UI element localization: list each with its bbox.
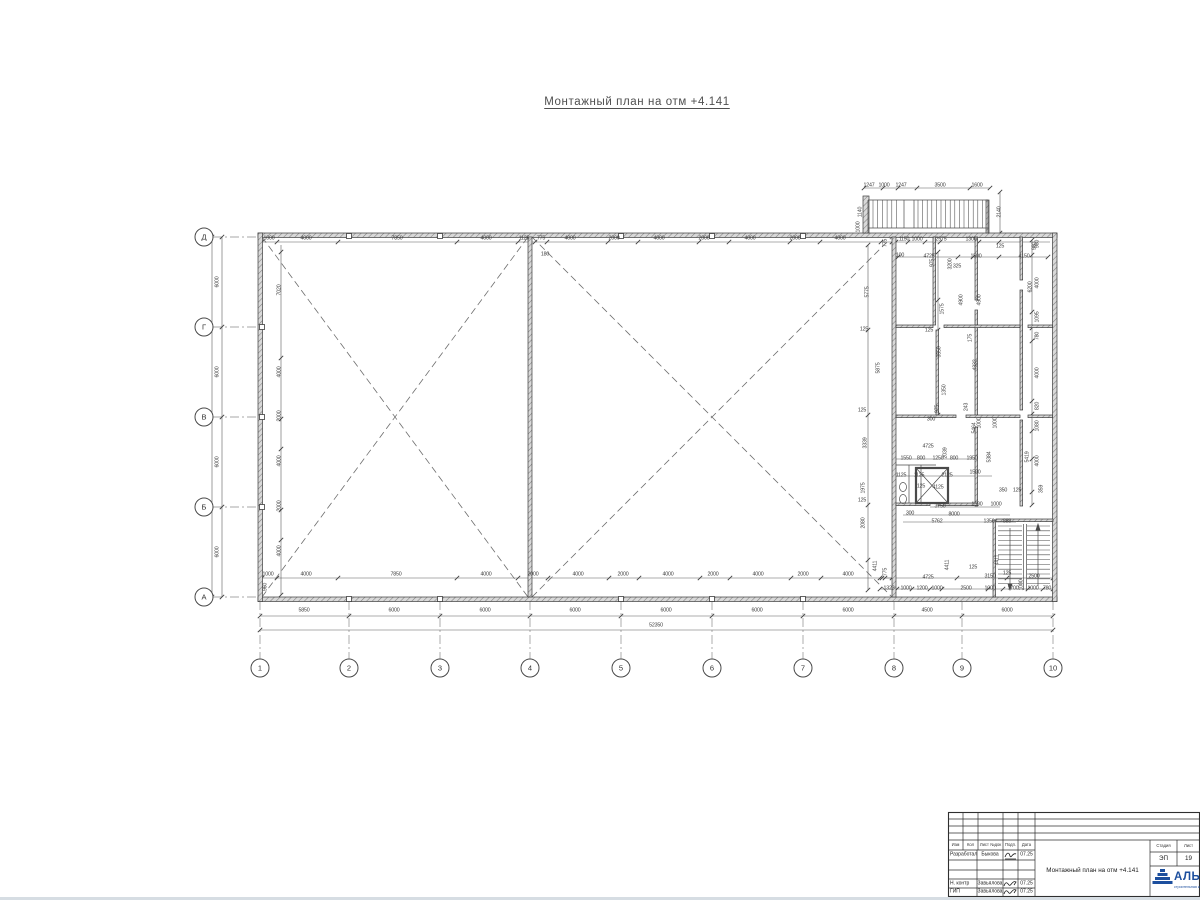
dim-label: 7850	[392, 236, 403, 241]
dim-label: 1250	[933, 456, 944, 461]
titleblock-name: Быкова	[981, 853, 998, 858]
dim-label: 4000	[753, 572, 764, 577]
dim-label: 125	[1003, 571, 1011, 576]
titleblock-date: 07.25	[1020, 881, 1033, 886]
dim-label: 5419	[1025, 452, 1030, 463]
dim-label: 4000	[481, 236, 492, 241]
dim-label: 1300	[966, 237, 977, 242]
dim-label: 1600	[972, 183, 983, 188]
wall-bottom	[258, 597, 1057, 602]
toilet-fixture	[900, 495, 907, 504]
dim-label: 5762	[932, 519, 943, 524]
titleblock-header-izm: Изм	[952, 843, 960, 847]
dim-label: 2000	[277, 501, 282, 512]
stage-label: Стадия	[1156, 844, 1170, 848]
dim-label: 4000	[301, 236, 312, 241]
axis-bubble-8: 8	[885, 659, 904, 678]
dim-label: 5850	[299, 608, 310, 613]
dim-label: 125	[860, 327, 868, 332]
toilet-fixture	[900, 483, 907, 492]
dim-label: 4125	[933, 485, 944, 490]
dim-label: 5775	[865, 287, 870, 298]
axis-bubble-9: 9	[953, 659, 972, 678]
dim-label: 4900	[977, 295, 982, 306]
titleblock-header-data: Дата	[1022, 843, 1031, 847]
dim-label: 1500	[970, 470, 981, 475]
dim-label: 4411	[873, 561, 878, 572]
dim-label: 4000	[277, 367, 282, 378]
signature-mark	[1004, 882, 1016, 886]
dim-label: 4000	[277, 546, 282, 557]
company-logo-icon	[1153, 869, 1173, 884]
dim-label: 2500	[961, 586, 972, 591]
dim-label: 359	[1039, 485, 1044, 493]
dim-label: 1000	[901, 586, 912, 591]
dim-label: 5464	[972, 423, 977, 434]
dim-label: 125	[996, 244, 1004, 249]
dim-label: 1000	[1028, 586, 1039, 591]
titleblock-date: 07.25	[1020, 890, 1033, 895]
dim-label: 3750	[935, 504, 946, 509]
axis-bubble-1: 1	[251, 659, 270, 678]
dim-label: 3500	[935, 183, 946, 188]
dim-label: 6000	[843, 608, 854, 613]
dim-label: 3150	[985, 574, 996, 579]
dim-label: 1000	[879, 183, 890, 188]
dim-label: 980	[1035, 240, 1040, 248]
axis-bubble-2: 2	[340, 659, 359, 678]
dim-label: 1000	[991, 502, 1002, 507]
axis-bubble-Д: Д	[195, 228, 214, 247]
dim-label: 1700	[1008, 586, 1019, 591]
dim-label: 800	[950, 456, 958, 461]
dim-label: 4000	[301, 572, 312, 577]
dim-label: 1200	[917, 586, 928, 591]
dim-label: 780	[1043, 586, 1051, 591]
dim-label: 6000	[570, 608, 581, 613]
dim-label: 2000	[618, 572, 629, 577]
dim-label: 2000	[708, 572, 719, 577]
sheet-label: Лист	[1184, 844, 1193, 848]
dim-label: 350	[999, 488, 1007, 493]
axis-bubble-10: 10	[1044, 659, 1063, 678]
dim-label: 775	[883, 239, 888, 247]
dim-label: 7020	[277, 285, 282, 296]
dim-label: 1125	[519, 236, 530, 241]
drawing-sheet: Монтажный план на отм +4.141	[0, 0, 1200, 900]
titleblock-doc-title: Монтажный план на отм +4.141	[1046, 868, 1138, 874]
titleblock-name: Завьялова	[978, 890, 1003, 895]
company-subtitle: строительная компания	[1174, 885, 1200, 889]
dim-label: 5875	[876, 363, 881, 374]
dim-label: 4725	[923, 575, 934, 580]
dim-label: 1125	[914, 473, 925, 478]
dim-label: 2125	[942, 473, 953, 478]
dim-label: 888	[1003, 519, 1011, 524]
axis-bubble-А: А	[195, 588, 214, 607]
dim-label: 4725	[923, 444, 934, 449]
dim-label: 775	[537, 236, 545, 241]
axis-bubble-4: 4	[521, 659, 540, 678]
dim-label: 125	[917, 484, 925, 489]
dim-label: 1000	[856, 222, 861, 233]
dim-label: 4000	[481, 572, 492, 577]
dim-label: 975	[930, 259, 935, 267]
dim-label: 1575	[940, 304, 945, 315]
dim-label: 2080	[861, 518, 866, 529]
titleblock-role: Н. контр	[950, 881, 969, 886]
dim-label: 1350	[984, 519, 995, 524]
dim-label: 2000	[277, 411, 282, 422]
dim-label: 4000	[1035, 278, 1040, 289]
dim-label: 2000	[528, 572, 539, 577]
stair-direction-arrow	[1036, 524, 1040, 530]
sheet-number: 19	[1185, 856, 1192, 862]
axis-bubble-6: 6	[703, 659, 722, 678]
titleblock-role: ГИП	[950, 890, 960, 895]
dim-label: 4000	[1035, 456, 1040, 467]
axis-bubble-Б: Б	[195, 498, 214, 517]
dim-label: 243	[964, 403, 969, 411]
dim-label: 3339	[863, 438, 868, 449]
dim-label: 4000	[654, 236, 665, 241]
dim-label: 8000	[949, 512, 960, 517]
dim-label: 2039	[943, 448, 948, 459]
signature-mark	[1005, 853, 1016, 859]
dim-label: 52350	[649, 623, 663, 628]
wall-right	[1053, 233, 1058, 602]
dim-label: 2000	[699, 236, 710, 241]
dim-label: 125	[925, 328, 933, 333]
titleblock-date: 07.25	[1020, 853, 1033, 858]
floor-plan-drawing	[0, 0, 1200, 900]
dim-label: 125	[969, 565, 977, 570]
titleblock-header-podp: Подп.	[1005, 843, 1016, 847]
dim-label: 125	[858, 498, 866, 503]
dim-label: 6000	[215, 547, 220, 558]
titleblock-header-kol: Кол	[967, 843, 974, 847]
dim-label: 4000	[663, 572, 674, 577]
dim-label: 2000	[790, 236, 801, 241]
dim-label: 125	[1013, 488, 1021, 493]
dim-label: 4332	[973, 360, 978, 371]
dim-label: 1000	[993, 418, 998, 429]
dim-label: 800	[917, 456, 925, 461]
dim-label: 7850	[391, 572, 402, 577]
dim-label: 1000	[263, 572, 274, 577]
dim-label: 100	[896, 253, 904, 258]
dim-label: 4500	[922, 608, 933, 613]
dim-label: 3550	[937, 347, 942, 358]
signature-mark	[1004, 890, 1016, 894]
dim-label: 6000	[215, 457, 220, 468]
dim-label: 1500	[972, 502, 983, 507]
dim-label: 125	[858, 408, 866, 413]
dim-label: 175	[968, 334, 973, 342]
dim-label: 975	[935, 405, 940, 413]
dim-label: 1975	[861, 483, 866, 494]
dim-label: 1950	[967, 456, 978, 461]
dim-label: 4000	[277, 456, 282, 467]
dim-label: 2575	[936, 237, 947, 242]
wall-axis4	[528, 237, 532, 597]
dim-label: 1000	[977, 418, 982, 429]
dim-label: 1000	[1019, 580, 1024, 591]
dim-label: 780	[1035, 332, 1040, 340]
dim-label: 4000	[835, 236, 846, 241]
bracing-layer	[262, 237, 892, 597]
dim-label: 6000	[215, 367, 220, 378]
dim-label: 6200	[1028, 282, 1033, 293]
dim-label: 1000	[985, 586, 996, 591]
dim-label: 6000	[480, 608, 491, 613]
dim-label: 180	[541, 252, 549, 257]
company-name: АЛЬЯНС	[1174, 871, 1200, 883]
dim-label: 1550	[901, 456, 912, 461]
dim-label: 1095	[1035, 312, 1040, 323]
dim-label: 6000	[752, 608, 763, 613]
dim-label: 4000	[745, 236, 756, 241]
axis-bubble-3: 3	[431, 659, 450, 678]
dim-label: 1350	[942, 385, 947, 396]
dim-label: 6000	[389, 608, 400, 613]
dim-label: 1323	[884, 586, 895, 591]
dim-label: 6000	[1002, 608, 1013, 613]
wall-axis8	[892, 237, 896, 597]
dim-label: 1000	[912, 237, 923, 242]
dim-label: 1247	[864, 183, 875, 188]
dim-label: 1140	[858, 207, 863, 218]
dim-label: 6000	[661, 608, 672, 613]
dim-label: 4150	[1019, 254, 1030, 259]
dim-label: 775	[883, 568, 888, 576]
axis-bubble-Г: Г	[195, 318, 214, 337]
dim-label: 2140	[997, 207, 1002, 218]
dim-label: 325	[953, 264, 961, 269]
axis-bubble-В: В	[195, 408, 214, 427]
dim-label: 1125	[896, 473, 907, 478]
dim-label: 2000	[609, 236, 620, 241]
dim-label: 4411	[945, 560, 950, 571]
titleblock-header-list: Лист №док	[980, 843, 1001, 847]
dim-label: 1247	[896, 183, 907, 188]
dim-label: 6000	[215, 277, 220, 288]
dim-label: 1000	[932, 586, 943, 591]
stage-value: ЭП	[1159, 856, 1168, 862]
dim-label: 1500	[971, 254, 982, 259]
dim-label: 2500	[1029, 574, 1040, 579]
titleblock-name: Завьялова	[978, 881, 1003, 886]
columns-layer	[260, 234, 806, 602]
dim-label: 4000	[573, 572, 584, 577]
titleblock-role: Разработал	[950, 853, 977, 858]
dim-label: 4000	[843, 572, 854, 577]
dim-label: 1080	[1035, 421, 1040, 432]
dim-label: 4000	[1035, 368, 1040, 379]
axis-bubble-5: 5	[612, 659, 631, 678]
dim-label: 4000	[565, 236, 576, 241]
axis-bubble-7: 7	[794, 659, 813, 678]
dim-label: 300	[906, 511, 914, 516]
dim-label: 960	[263, 583, 268, 591]
dim-label: 4411	[995, 555, 1000, 566]
dim-label: 1150	[899, 237, 910, 242]
dim-label: 5384	[987, 452, 992, 463]
dim-label: 820	[1035, 402, 1040, 410]
dim-label: 2000	[798, 572, 809, 577]
dim-label: 1000	[264, 236, 275, 241]
dim-label: 4900	[959, 295, 964, 306]
dim-label: 300	[927, 417, 935, 422]
